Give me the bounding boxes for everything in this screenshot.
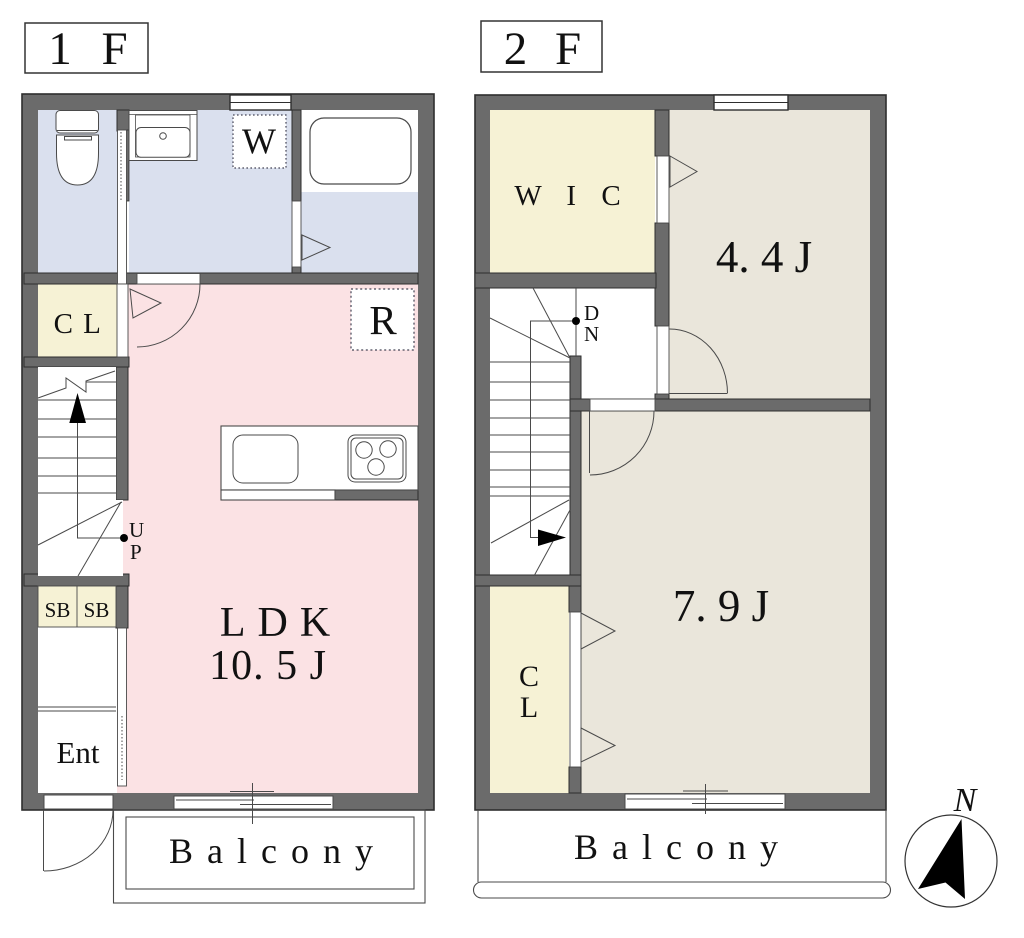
svg-text:W: W [242,121,276,161]
svg-text:10. 5 J: 10. 5 J [209,643,327,689]
svg-text:SB: SB [84,598,110,622]
svg-text:L: L [520,691,538,724]
svg-text:1 F: 1 F [48,23,136,75]
svg-text:Ent: Ent [56,735,99,770]
svg-text:P: P [130,540,142,564]
svg-text:W I C: W I C [514,180,629,212]
svg-text:N: N [953,782,979,819]
svg-text:4. 4 J: 4. 4 J [716,232,812,282]
svg-text:2 F: 2 F [504,23,589,75]
svg-text:C L: C L [54,308,103,340]
svg-text:LDK: LDK [220,600,342,646]
svg-text:U: U [129,518,144,542]
svg-text:N: N [584,322,599,346]
svg-text:Balcony: Balcony [169,831,387,871]
svg-text:C: C [519,660,539,693]
svg-text:7. 9 J: 7. 9 J [673,581,769,631]
svg-text:SB: SB [45,598,71,622]
svg-text:Balcony: Balcony [574,827,792,867]
svg-text:R: R [369,297,397,343]
